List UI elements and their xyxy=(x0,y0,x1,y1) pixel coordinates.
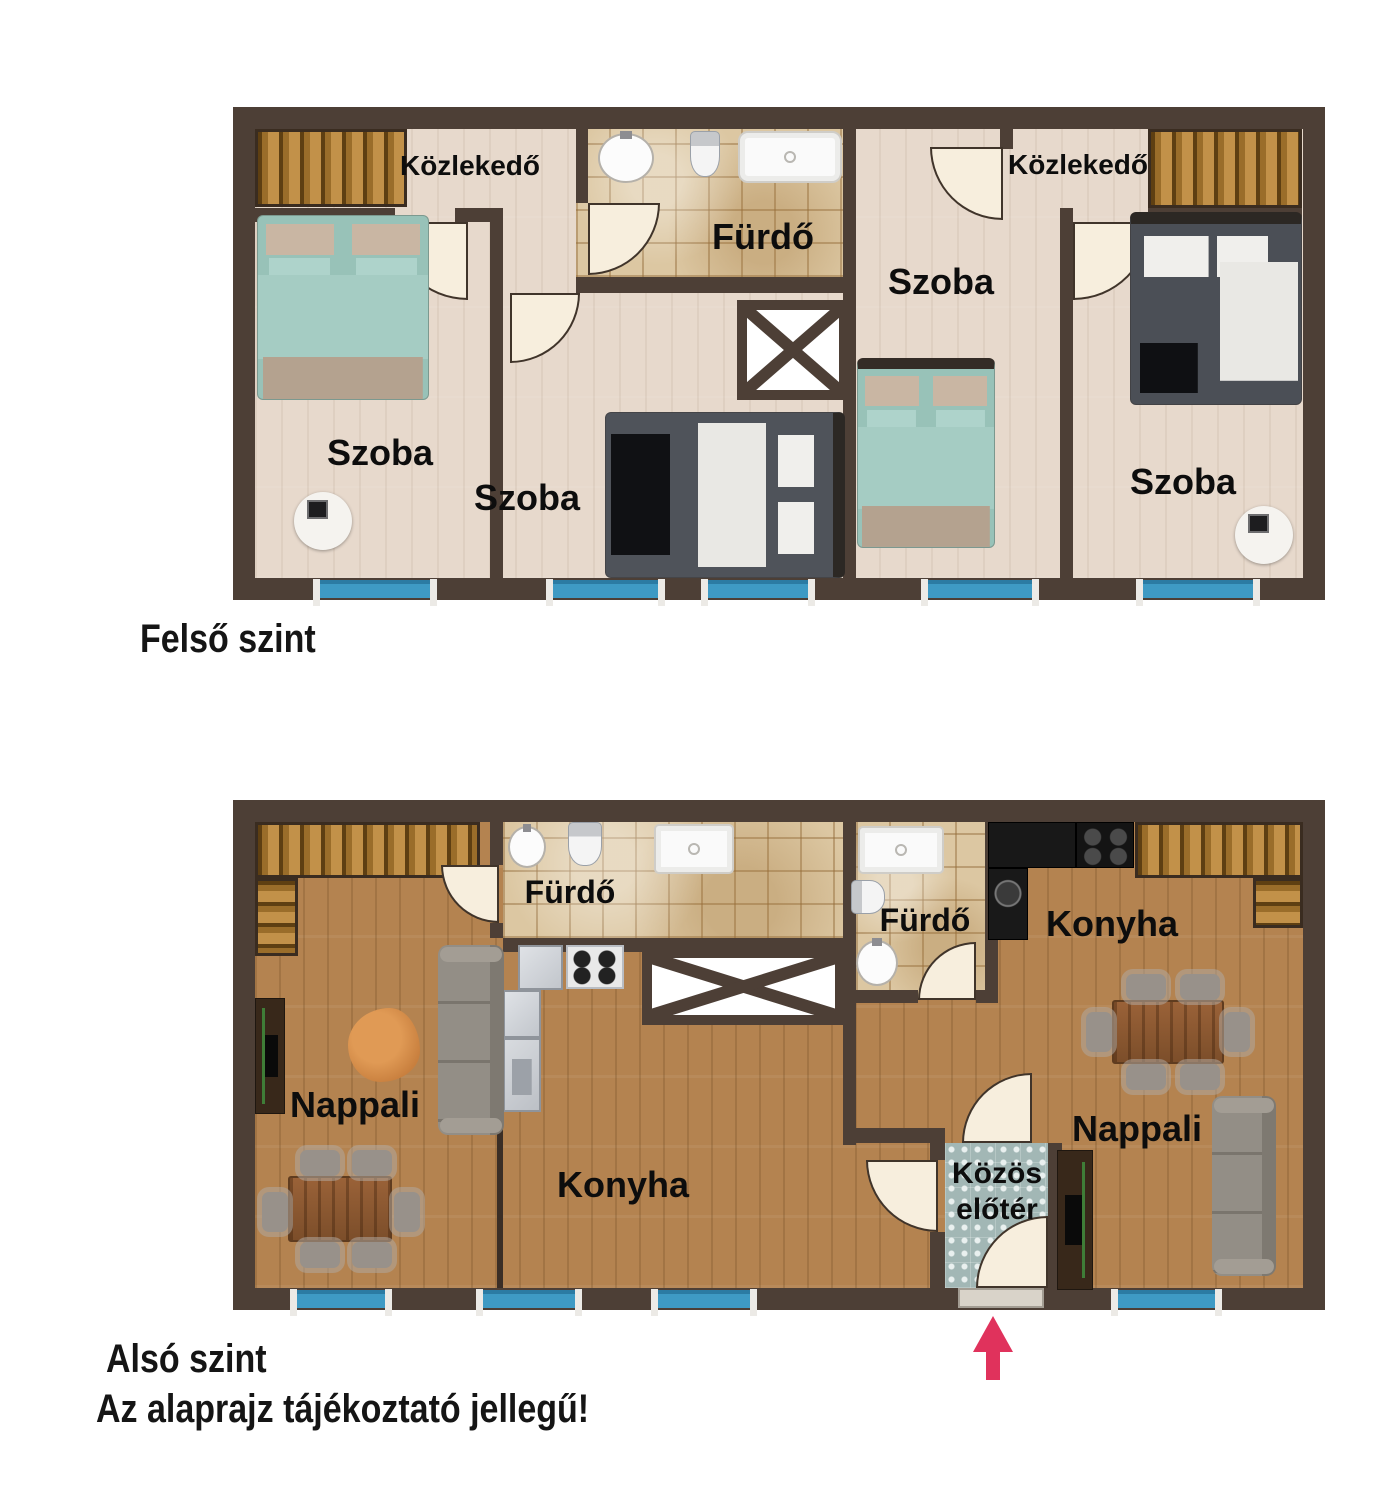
dining-table xyxy=(1112,1000,1224,1064)
window xyxy=(658,1290,750,1308)
chair xyxy=(1224,1012,1250,1052)
sofa xyxy=(438,945,504,1135)
room-label-furdo-upper: Fürdő xyxy=(712,219,814,255)
bathroom-sink xyxy=(598,133,654,183)
wall xyxy=(930,1143,945,1160)
window xyxy=(928,580,1032,598)
sofa xyxy=(1212,1096,1276,1276)
double-bed-dark xyxy=(605,412,845,578)
room-label-kozlekedo-right: Közlekedő xyxy=(1008,151,1148,179)
chair xyxy=(352,1242,392,1268)
window xyxy=(297,1290,385,1308)
door-swing xyxy=(962,1073,1032,1143)
door-swing xyxy=(510,293,580,363)
chair xyxy=(394,1192,420,1232)
double-bed-teal xyxy=(857,358,995,548)
lower-floor-caption: Alsó szint xyxy=(106,1336,267,1382)
wall xyxy=(576,129,588,203)
entrance-door-leaf xyxy=(958,1288,1044,1308)
shower-tray xyxy=(654,824,734,874)
kitchen-sink xyxy=(503,1038,541,1112)
chair xyxy=(1180,974,1220,1000)
window xyxy=(708,580,808,598)
window xyxy=(553,580,658,598)
room-label-furdo-left: Fürdő xyxy=(525,876,616,908)
double-bed-dark xyxy=(1130,212,1302,405)
rug xyxy=(348,1008,420,1082)
room-label-szoba-right-1: Szoba xyxy=(888,264,994,300)
x-mark-icon xyxy=(747,310,839,390)
tv-console xyxy=(1057,1150,1093,1290)
side-table xyxy=(1235,506,1293,564)
stove-hob xyxy=(566,945,624,989)
chair xyxy=(352,1150,392,1176)
room-label-konyha-right: Konyha xyxy=(1046,906,1178,942)
room-label-szoba-left: Szoba xyxy=(327,435,433,471)
entrance-arrow-icon xyxy=(973,1316,1013,1382)
chair xyxy=(1126,974,1166,1000)
toilet xyxy=(568,822,602,866)
kitchen-counter xyxy=(988,822,1076,868)
chair xyxy=(1126,1064,1166,1090)
dining-table xyxy=(288,1176,392,1242)
door-swing xyxy=(441,865,499,923)
double-bed-teal xyxy=(257,215,429,400)
window xyxy=(1118,1290,1215,1308)
lower-floor-plan: Fürdő Fürdő Konyha Nappali Konyha Nappal… xyxy=(233,800,1325,1310)
stair-void xyxy=(737,300,849,400)
disclaimer-note: Az alaprajz tájékoztató jellegű! xyxy=(96,1386,589,1432)
shower-tray xyxy=(858,826,944,874)
floorplan-canvas: Közlekedő Fürdő Szoba Szoba Szoba Közlek… xyxy=(0,0,1400,1500)
window xyxy=(1143,580,1253,598)
fridge xyxy=(518,945,563,990)
room-label-furdo-right: Fürdő xyxy=(880,904,971,936)
room-label-kozos-eloter-1: Közös xyxy=(952,1159,1042,1189)
door-swing xyxy=(866,1160,938,1232)
wall xyxy=(850,1128,945,1143)
room-label-kozlekedo-left: Közlekedő xyxy=(400,152,540,180)
wall xyxy=(490,923,503,938)
room-label-kozos-eloter-2: előtér xyxy=(956,1195,1038,1225)
x-mark-icon xyxy=(652,958,835,1015)
tv-console xyxy=(255,998,285,1114)
kitchen-counter xyxy=(503,990,541,1038)
wall xyxy=(930,1232,945,1288)
wall xyxy=(1060,208,1073,578)
upper-floor-caption: Felső szint xyxy=(140,616,316,662)
room-label-konyha-left: Konyha xyxy=(557,1167,689,1203)
stair-void xyxy=(642,948,845,1025)
bathroom-sink xyxy=(856,940,898,986)
stove-hob xyxy=(1076,822,1134,868)
staircase-upper-left xyxy=(255,129,407,207)
wall xyxy=(490,222,503,578)
entrance-arrow-head xyxy=(973,1316,1013,1352)
staircase-lower-left-turn xyxy=(255,878,298,956)
chair xyxy=(1086,1012,1112,1052)
door-swing xyxy=(930,147,1003,220)
wall xyxy=(576,277,856,293)
wall xyxy=(490,822,503,865)
window xyxy=(483,1290,575,1308)
wall xyxy=(1000,129,1013,149)
kitchen-sink xyxy=(988,868,1028,940)
chair xyxy=(300,1242,340,1268)
upper-floor-plan: Közlekedő Fürdő Szoba Szoba Szoba Közlek… xyxy=(233,107,1325,600)
entrance-arrow-shaft xyxy=(986,1352,1000,1380)
staircase-lower-right-turn xyxy=(1253,878,1303,928)
staircase-upper-right xyxy=(1148,129,1302,208)
window xyxy=(320,580,430,598)
room-label-nappali-right: Nappali xyxy=(1072,1111,1202,1147)
bathtub xyxy=(738,131,842,183)
side-table xyxy=(294,492,352,550)
chair xyxy=(1180,1064,1220,1090)
bathroom-sink xyxy=(508,826,546,868)
room-label-nappali-left: Nappali xyxy=(290,1087,420,1123)
wall xyxy=(455,208,503,222)
room-label-szoba-middle: Szoba xyxy=(474,480,580,516)
wall xyxy=(976,990,998,1003)
chair xyxy=(262,1192,288,1232)
toilet xyxy=(690,131,720,177)
chair xyxy=(300,1150,340,1176)
room-label-szoba-right-2: Szoba xyxy=(1130,464,1236,500)
wall xyxy=(843,990,918,1003)
staircase-lower-right xyxy=(1135,822,1303,878)
